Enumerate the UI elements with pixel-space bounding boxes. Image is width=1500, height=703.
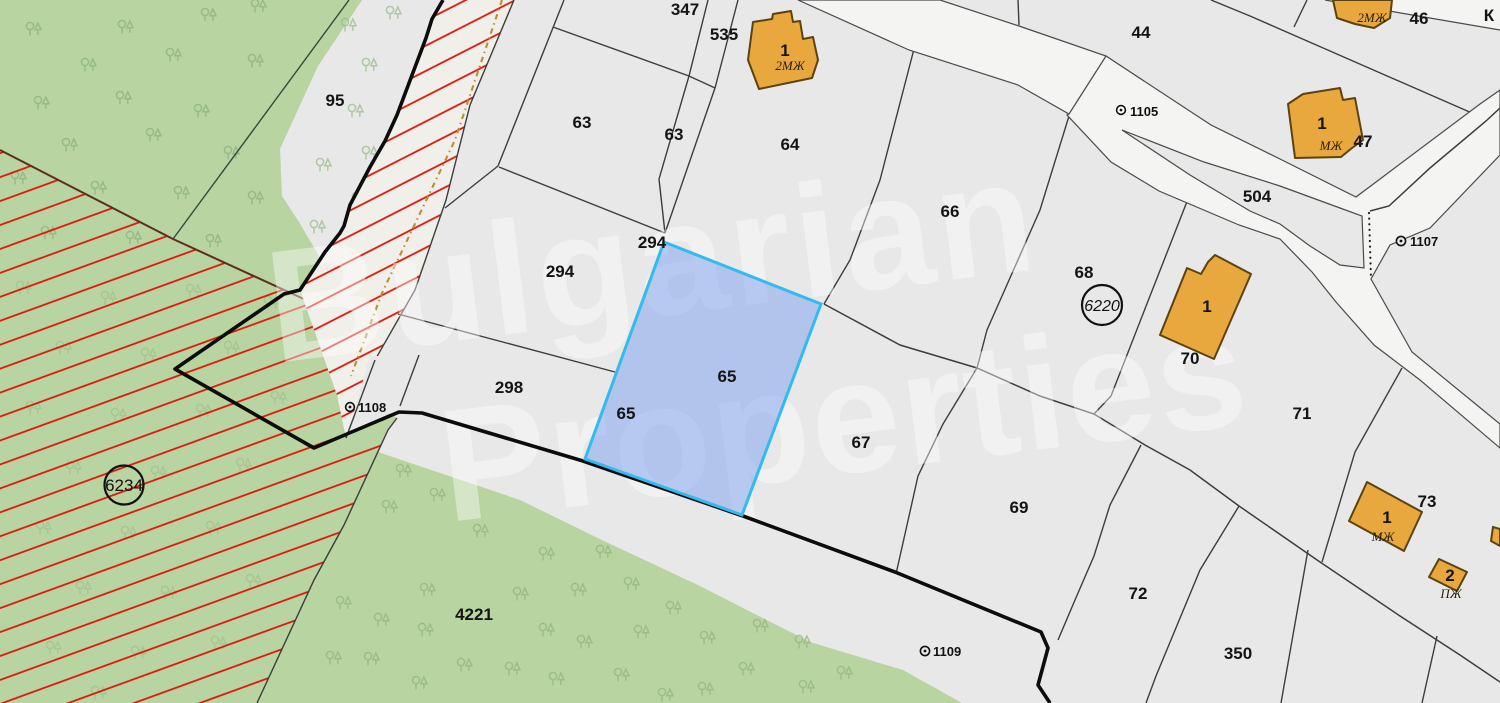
svg-text:63: 63: [665, 125, 684, 144]
svg-text:70: 70: [1181, 349, 1200, 368]
svg-text:1109: 1109: [933, 644, 961, 659]
svg-text:69: 69: [1010, 498, 1029, 517]
svg-text:47: 47: [1354, 132, 1373, 151]
svg-text:294: 294: [638, 233, 667, 252]
svg-text:46: 46: [1410, 9, 1429, 28]
svg-text:1: 1: [1317, 114, 1326, 133]
svg-text:65: 65: [718, 367, 737, 386]
svg-text:2МЖ: 2МЖ: [775, 58, 805, 73]
svg-text:95: 95: [326, 91, 345, 110]
svg-text:350: 350: [1224, 644, 1252, 663]
svg-text:4221: 4221: [455, 605, 493, 624]
svg-text:294: 294: [546, 262, 575, 281]
svg-text:71: 71: [1293, 404, 1312, 423]
svg-text:73: 73: [1418, 492, 1437, 511]
svg-text:504: 504: [1243, 187, 1272, 206]
svg-text:2МЖ: 2МЖ: [1357, 10, 1387, 25]
svg-text:64: 64: [781, 135, 800, 154]
svg-text:1: 1: [1382, 508, 1391, 527]
svg-text:1108: 1108: [358, 400, 386, 415]
svg-text:66: 66: [941, 202, 960, 221]
svg-text:1: 1: [1202, 297, 1211, 316]
svg-text:67: 67: [852, 433, 871, 452]
svg-text:44: 44: [1132, 23, 1151, 42]
svg-text:1105: 1105: [1130, 104, 1158, 119]
svg-text:6220: 6220: [1084, 298, 1120, 315]
svg-text:МЖ: МЖ: [1319, 138, 1344, 153]
svg-text:МЖ: МЖ: [1371, 529, 1396, 544]
svg-text:347: 347: [671, 0, 699, 19]
svg-text:68: 68: [1075, 263, 1094, 282]
svg-text:1107: 1107: [1410, 234, 1438, 249]
svg-text:63: 63: [573, 113, 592, 132]
svg-text:535: 535: [710, 25, 738, 44]
svg-text:К: К: [1484, 6, 1495, 25]
svg-text:298: 298: [495, 378, 523, 397]
svg-text:6234: 6234: [105, 476, 143, 495]
svg-text:65: 65: [617, 404, 636, 423]
svg-text:2: 2: [1445, 566, 1454, 585]
svg-text:72: 72: [1129, 584, 1148, 603]
svg-text:ПЖ: ПЖ: [1439, 586, 1462, 601]
